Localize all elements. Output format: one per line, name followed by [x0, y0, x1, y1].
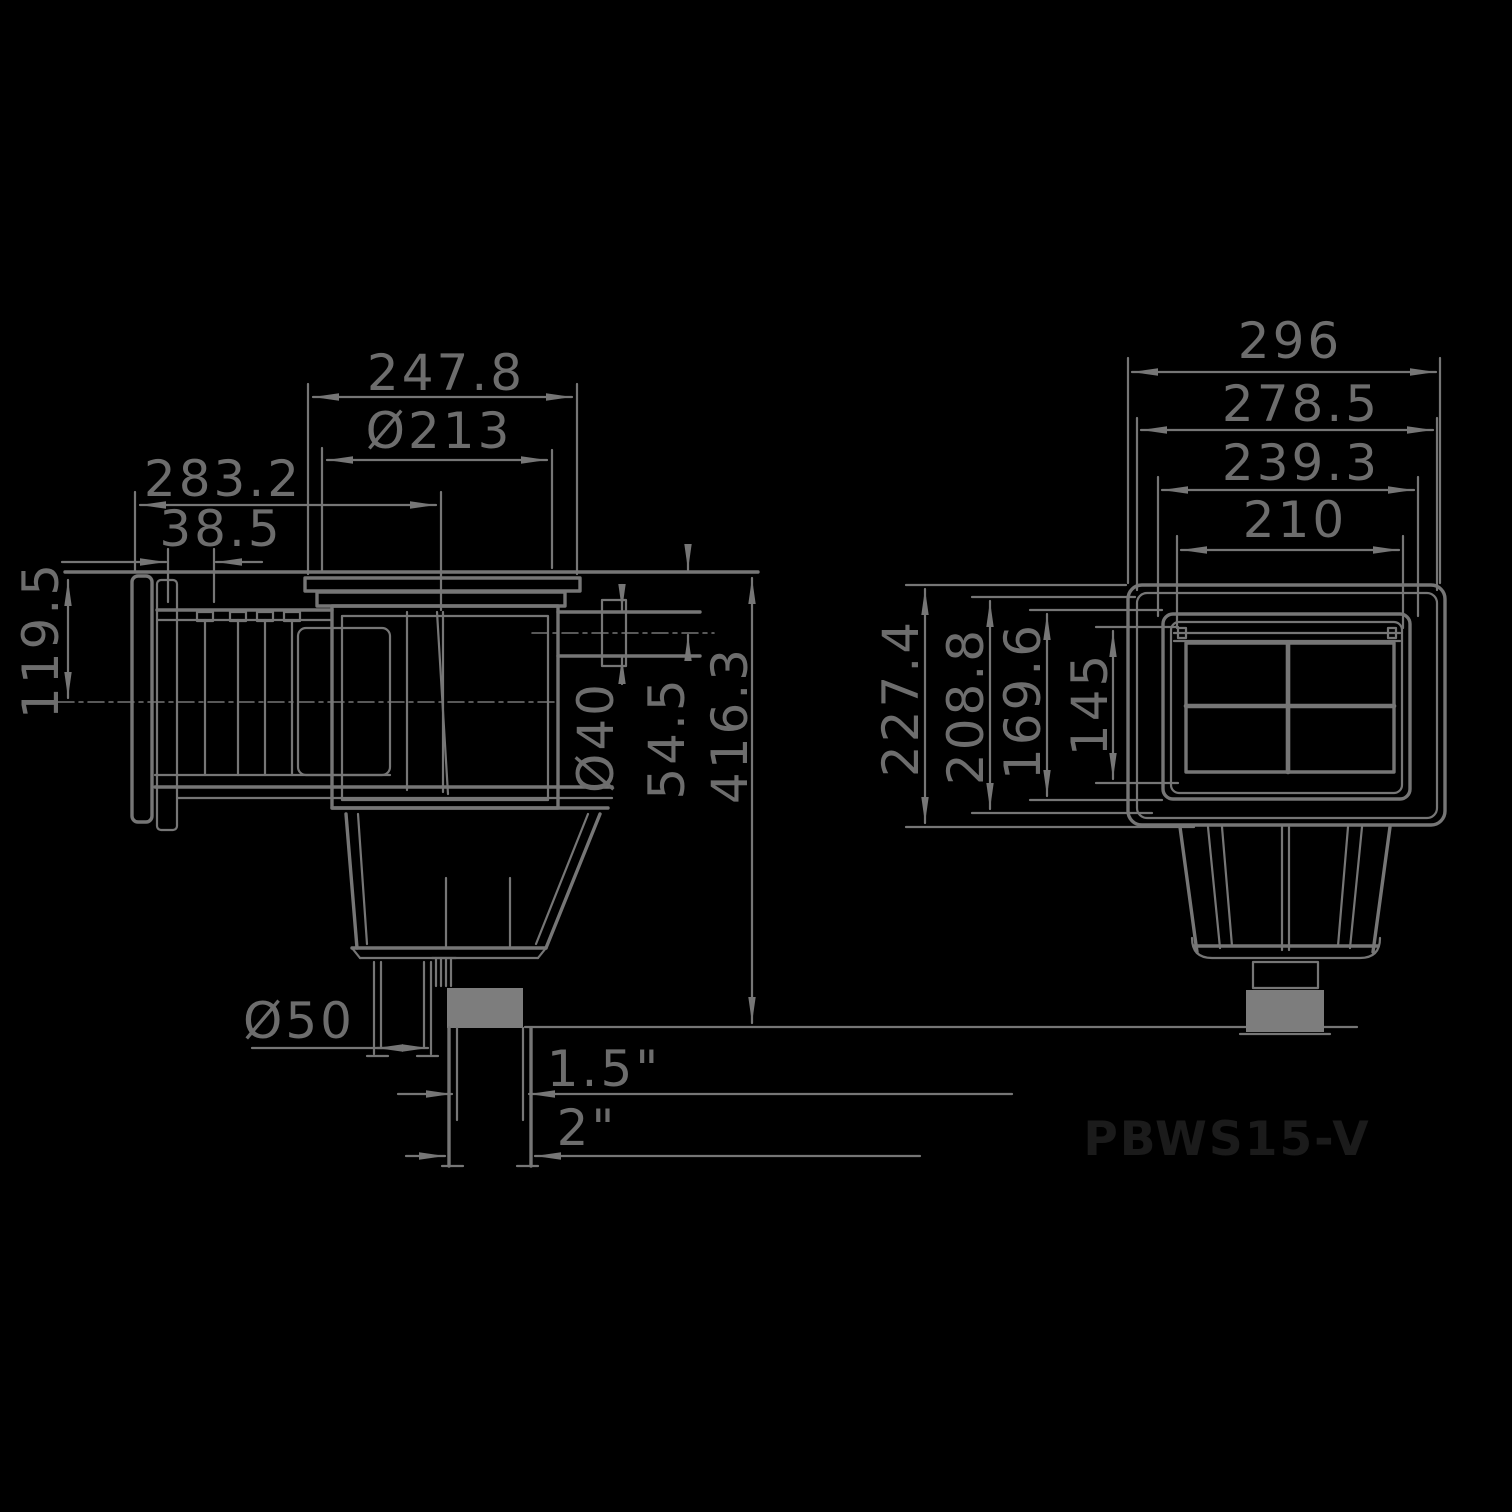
- front-view: [1128, 585, 1445, 1034]
- dim-front-width-outer: 296: [1238, 312, 1342, 370]
- dim-front-height-inner: 169.6: [994, 622, 1052, 780]
- throat-weir: [155, 610, 612, 808]
- basket: [346, 814, 600, 958]
- dim-front-width-inner: 239.3: [1222, 434, 1380, 492]
- dim-side-inlet-offset: 54.5: [638, 676, 696, 799]
- dim-front-height-outer: 227.4: [872, 619, 930, 777]
- dim-side-lid-diameter: Ø213: [366, 402, 513, 460]
- dim-front-height-mid: 208.8: [937, 627, 995, 785]
- threaded-adapter: [432, 958, 523, 1028]
- dim-side-thread-inner: 1.5": [547, 1040, 662, 1098]
- dim-side-top-width: 247.8: [367, 344, 525, 402]
- front-view-dimensions: 296 278.5 239.3 210 227.4 208.8 169.6 14…: [872, 312, 1440, 827]
- dim-side-total-height: 416.3: [701, 646, 759, 804]
- faceplate: [132, 576, 177, 830]
- dim-front-height-opening: 145: [1061, 652, 1119, 756]
- technical-drawing-canvas: 247.8 Ø213 283.2 38.5 119.5 Ø40 54.5 416…: [0, 0, 1512, 1512]
- dim-side-inlet-diameter: Ø40: [567, 681, 625, 793]
- dim-front-width-opening: 210: [1243, 491, 1347, 549]
- skimmer-body: [332, 606, 558, 808]
- dim-side-flange-width: 38.5: [159, 500, 282, 558]
- outlet-pipe: [442, 1028, 538, 1166]
- model-label: PBWS15-V: [1083, 1112, 1370, 1167]
- drain-stub: [367, 962, 438, 1056]
- basket-front: [1180, 827, 1390, 958]
- skimmer-lid: [305, 578, 580, 606]
- dim-side-drain-diameter: Ø50: [243, 992, 355, 1050]
- drawing-page: 247.8 Ø213 283.2 38.5 119.5 Ø40 54.5 416…: [0, 0, 1512, 1512]
- dim-side-faceplate-height: 119.5: [12, 561, 70, 719]
- dim-side-thread-outer: 2": [557, 1099, 618, 1157]
- skimmer-window: [1186, 643, 1394, 772]
- dim-front-width-mid: 278.5: [1222, 375, 1380, 433]
- outlet-front: [1240, 962, 1330, 1034]
- side-view-dimensions: 247.8 Ø213 283.2 38.5 119.5 Ø40 54.5 416…: [12, 344, 1357, 1157]
